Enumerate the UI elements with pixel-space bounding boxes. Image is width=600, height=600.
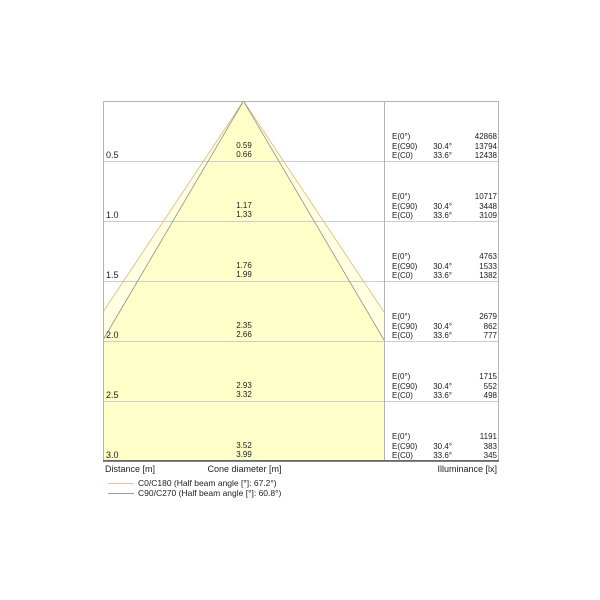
e0-label: E(0°) bbox=[392, 312, 410, 321]
illuminance-axis-label: Illuminance [lx] bbox=[380, 464, 497, 474]
ec90-value: 862 bbox=[445, 322, 497, 331]
cone-diameter-values: 2.93 3.32 bbox=[184, 382, 304, 399]
legend-label: C0/C180 (Half beam angle [°]: 67.2°) bbox=[138, 478, 277, 488]
cone-diameter-values: 3.52 3.99 bbox=[184, 442, 304, 459]
e0-value: 10717 bbox=[445, 192, 497, 201]
illuminance-line-ec0: E(C0) 33.6° 12438 bbox=[392, 151, 497, 160]
illuminance-line-e0: E(0°) 1715 bbox=[392, 372, 497, 381]
e0-value: 4763 bbox=[445, 252, 497, 261]
cone-diameter-c0-value: 0.66 bbox=[184, 151, 304, 160]
cone-diameter-c0-value: 1.33 bbox=[184, 211, 304, 220]
illuminance-line-ec0: E(C0) 33.6° 777 bbox=[392, 331, 497, 340]
e0-value: 2679 bbox=[445, 312, 497, 321]
illuminance-line-ec90: E(C90) 30.4° 552 bbox=[392, 382, 497, 391]
illuminance-line-ec0: E(C0) 33.6° 3109 bbox=[392, 211, 497, 220]
cone-diameter-c0-value: 3.99 bbox=[184, 451, 304, 460]
illuminance-line-ec90: E(C90) 30.4° 862 bbox=[392, 322, 497, 331]
ec90-value: 1533 bbox=[445, 262, 497, 271]
table-row: 3.0 3.52 3.99 E(0°) 1191 E(C90) 30.4° 38… bbox=[103, 431, 499, 461]
illuminance-line-ec0: E(C0) 33.6° 1382 bbox=[392, 271, 497, 280]
ec0-value: 3109 bbox=[445, 211, 497, 220]
cone-diameter-c0-value: 1.99 bbox=[184, 271, 304, 280]
ec0-value: 1382 bbox=[445, 271, 497, 280]
ec90-value: 13794 bbox=[445, 142, 497, 151]
illuminance-line-ec0: E(C0) 33.6° 345 bbox=[392, 451, 497, 460]
illuminance-line-ec90: E(C90) 30.4° 13794 bbox=[392, 142, 497, 151]
cone-diameter-values: 1.76 1.99 bbox=[184, 262, 304, 279]
illuminance-line-ec0: E(C0) 33.6° 498 bbox=[392, 391, 497, 400]
illuminance-line-e0: E(0°) 1191 bbox=[392, 432, 497, 441]
e0-value: 42868 bbox=[445, 132, 497, 141]
distance-label: 3.0 bbox=[106, 450, 119, 460]
cone-diameter-axis-label: Cone diameter [m] bbox=[184, 464, 305, 474]
distance-axis-label: Distance [m] bbox=[105, 464, 155, 474]
ec0-value: 498 bbox=[445, 391, 497, 400]
ec90-value: 552 bbox=[445, 382, 497, 391]
c0-c180-line-swatch bbox=[108, 483, 134, 484]
e0-label: E(0°) bbox=[392, 252, 410, 261]
distance-label: 1.5 bbox=[106, 270, 119, 280]
e0-value: 1191 bbox=[445, 432, 497, 441]
light-cone-diagram: 0.5 0.59 0.66 E(0°) 42868 E(C90) 30.4° 1… bbox=[0, 0, 600, 600]
e0-value: 1715 bbox=[445, 372, 497, 381]
cone-diameter-c0-value: 2.66 bbox=[184, 331, 304, 340]
c90-c270-line-swatch bbox=[108, 493, 134, 494]
ec90-value: 3448 bbox=[445, 202, 497, 211]
cone-diameter-values: 0.59 0.66 bbox=[184, 142, 304, 159]
distance-label: 0.5 bbox=[106, 150, 119, 160]
distance-label: 1.0 bbox=[106, 210, 119, 220]
ec0-value: 777 bbox=[445, 331, 497, 340]
e0-label: E(0°) bbox=[392, 372, 410, 381]
table-row: 2.0 2.35 2.66 E(0°) 2679 E(C90) 30.4° 86… bbox=[103, 311, 499, 341]
illuminance-line-e0: E(0°) 2679 bbox=[392, 312, 497, 321]
ec0-value: 345 bbox=[445, 451, 497, 460]
illuminance-line-ec90: E(C90) 30.4° 383 bbox=[392, 442, 497, 451]
cone-plot bbox=[0, 0, 600, 600]
legend-item-c90-c270: C90/C270 (Half beam angle [°]: 60.8°) bbox=[103, 488, 497, 498]
cone-diameter-values: 2.35 2.66 bbox=[184, 322, 304, 339]
table-row: 2.5 2.93 3.32 E(0°) 1715 E(C90) 30.4° 55… bbox=[103, 371, 499, 401]
e0-label: E(0°) bbox=[392, 432, 410, 441]
distance-label: 2.5 bbox=[106, 390, 119, 400]
cone-diameter-c0-value: 3.32 bbox=[184, 391, 304, 400]
e0-label: E(0°) bbox=[392, 132, 410, 141]
illuminance-line-e0: E(0°) 42868 bbox=[392, 132, 497, 141]
legend-item-c0-c180: C0/C180 (Half beam angle [°]: 67.2°) bbox=[103, 478, 497, 488]
ec90-value: 383 bbox=[445, 442, 497, 451]
ec0-value: 12438 bbox=[445, 151, 497, 160]
illuminance-line-e0: E(0°) 10717 bbox=[392, 192, 497, 201]
cone-diameter-values: 1.17 1.33 bbox=[184, 202, 304, 219]
table-row: 1.5 1.76 1.99 E(0°) 4763 E(C90) 30.4° 15… bbox=[103, 251, 499, 281]
illuminance-line-ec90: E(C90) 30.4° 3448 bbox=[392, 202, 497, 211]
illuminance-line-ec90: E(C90) 30.4° 1533 bbox=[392, 262, 497, 271]
illuminance-line-e0: E(0°) 4763 bbox=[392, 252, 497, 261]
e0-label: E(0°) bbox=[392, 192, 410, 201]
table-row: 0.5 0.59 0.66 E(0°) 42868 E(C90) 30.4° 1… bbox=[103, 131, 499, 161]
table-row: 1.0 1.17 1.33 E(0°) 10717 E(C90) 30.4° 3… bbox=[103, 191, 499, 221]
distance-label: 2.0 bbox=[106, 330, 119, 340]
legend-label: C90/C270 (Half beam angle [°]: 60.8°) bbox=[138, 488, 281, 498]
